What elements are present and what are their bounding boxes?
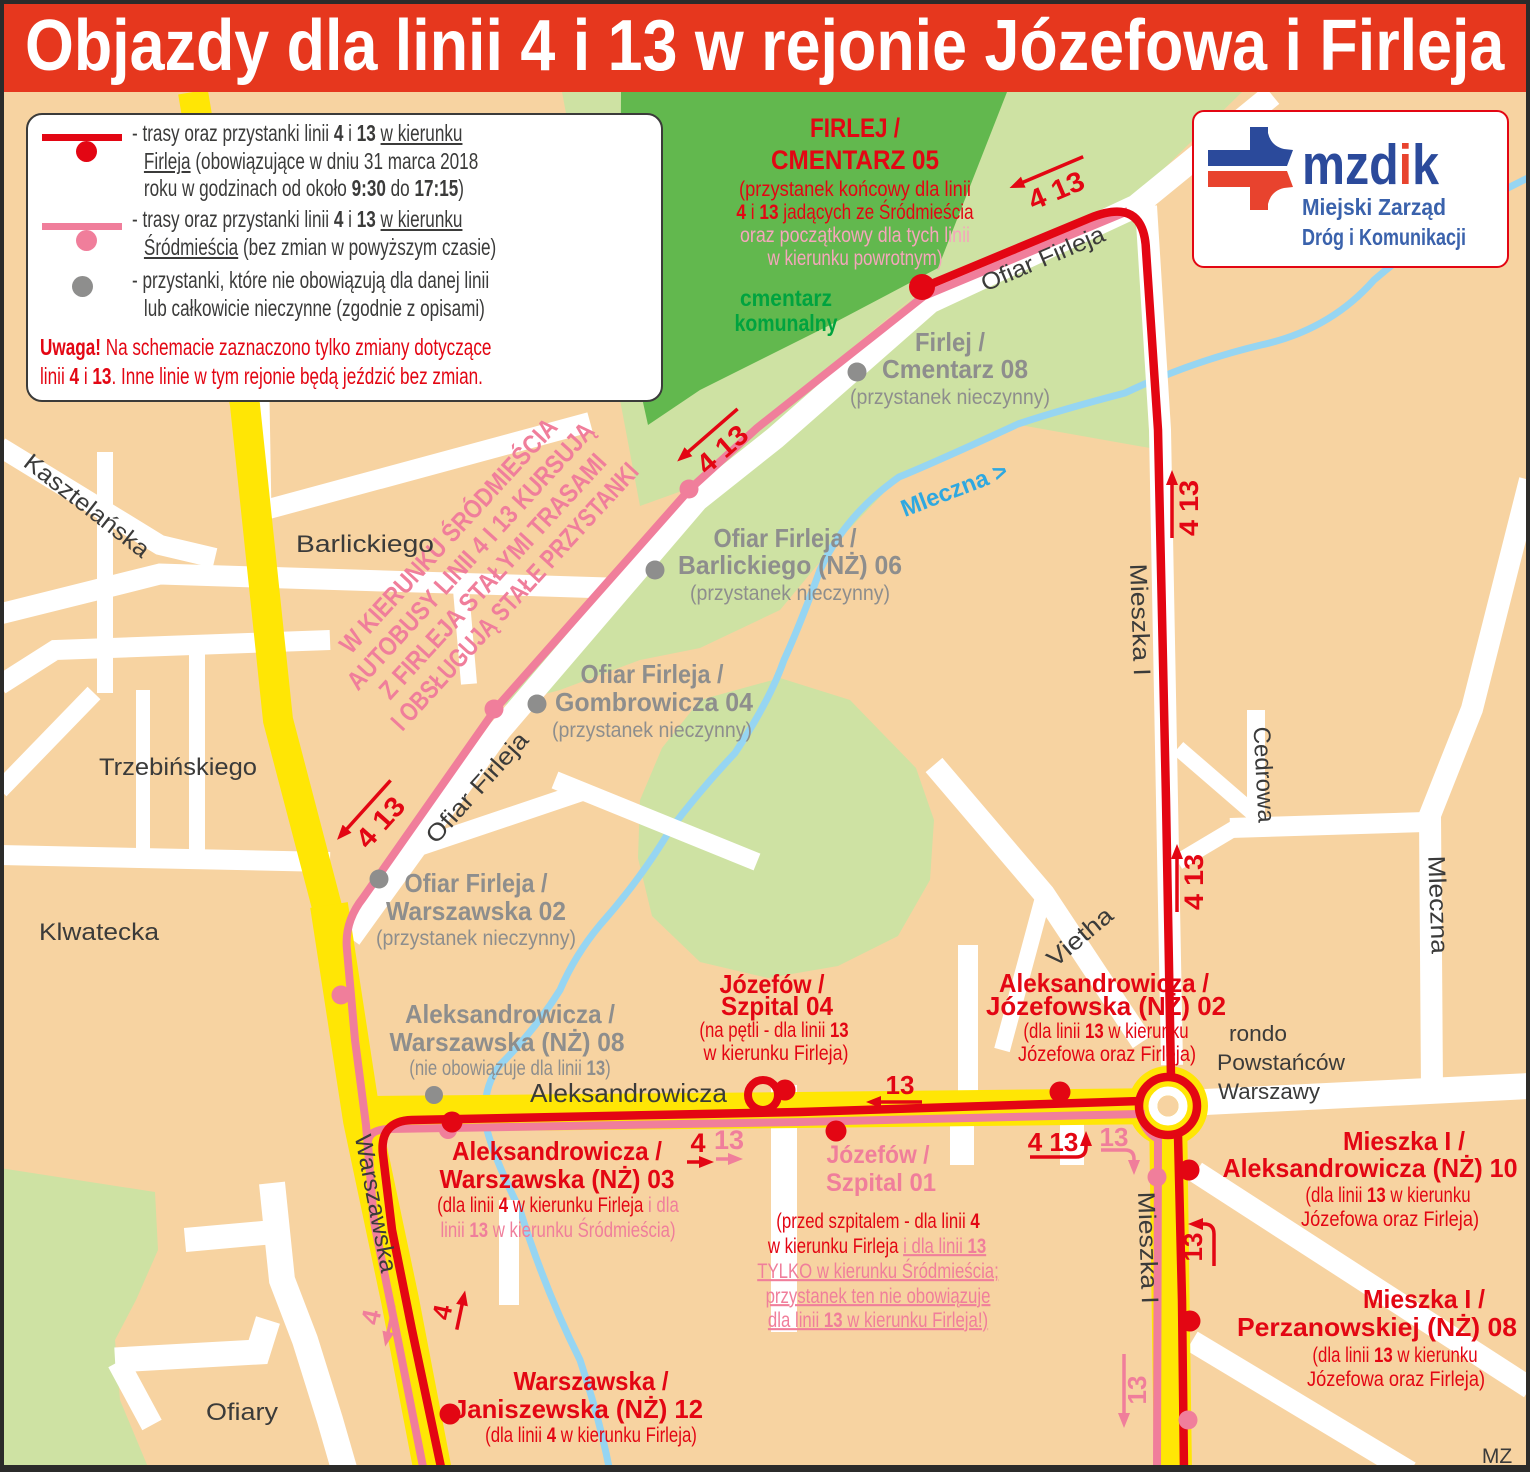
svg-text:dla linii 13 w kierunku Firlej: dla linii 13 w kierunku Firleja!) <box>768 1309 988 1332</box>
svg-text:MZ: MZ <box>1482 1445 1512 1468</box>
svg-text:4 i 13 jadących ze Śródmieścia: 4 i 13 jadących ze Śródmieścia <box>736 200 973 224</box>
svg-text:13: 13 <box>1100 1122 1129 1152</box>
svg-text:Warszawy: Warszawy <box>1218 1079 1320 1104</box>
svg-text:Barlickiego (NŻ) 06: Barlickiego (NŻ) 06 <box>678 550 902 580</box>
svg-text:Józefowa oraz Firleja): Józefowa oraz Firleja) <box>1018 1043 1196 1066</box>
svg-text:4 13: 4 13 <box>1179 854 1209 910</box>
svg-text:4 13: 4 13 <box>1028 1127 1079 1157</box>
svg-text:TYLKO w kierunku Śródmieścia;: TYLKO w kierunku Śródmieścia; <box>757 1259 999 1283</box>
svg-text:Janiszewska (NŻ) 12: Janiszewska (NŻ) 12 <box>453 1394 703 1424</box>
svg-text:(przystanek nieczynny): (przystanek nieczynny) <box>850 386 1050 409</box>
svg-text:cmentarz: cmentarz <box>740 285 832 311</box>
svg-text:Firlej /: Firlej / <box>915 327 985 357</box>
svg-text:Ofiar Firleja /: Ofiar Firleja / <box>405 868 548 898</box>
svg-text:(przystanek końcowy dla linii: (przystanek końcowy dla linii <box>739 178 971 201</box>
svg-text:Józefów /: Józefów / <box>827 1141 930 1169</box>
svg-text:(przystanek nieczynny): (przystanek nieczynny) <box>690 582 890 605</box>
svg-text:Klwatecka: Klwatecka <box>39 919 160 946</box>
svg-text:Gombrowicza 04: Gombrowicza 04 <box>555 687 754 717</box>
svg-text:(dla linii 4 w kierunku Firlej: (dla linii 4 w kierunku Firleja i dla <box>437 1194 679 1217</box>
svg-text:Ofiar Firleja /: Ofiar Firleja / <box>581 659 724 689</box>
svg-text:Warszawska (NŻ) 08: Warszawska (NŻ) 08 <box>390 1027 625 1057</box>
svg-text:Warszawska (NŻ) 03: Warszawska (NŻ) 03 <box>440 1164 675 1194</box>
svg-text:Mieszka I: Mieszka I <box>1132 1191 1163 1304</box>
svg-text:oraz początkowy dla tych linii: oraz początkowy dla tych linii <box>740 224 970 247</box>
svg-text:4: 4 <box>690 1128 705 1158</box>
svg-text:Barlickiego: Barlickiego <box>296 531 434 558</box>
svg-text:Warszawska 02: Warszawska 02 <box>386 896 566 926</box>
svg-text:w kierunku powrotnym): w kierunku powrotnym) <box>767 247 943 270</box>
svg-text:(przystanek nieczynny): (przystanek nieczynny) <box>552 719 752 742</box>
svg-text:Ofiar Firleja /: Ofiar Firleja / <box>714 523 857 553</box>
svg-text:rondo: rondo <box>1229 1021 1287 1046</box>
svg-text:13: 13 <box>1178 1233 1208 1262</box>
svg-text:Ofiary: Ofiary <box>206 1399 278 1426</box>
svg-text:13: 13 <box>1122 1376 1152 1405</box>
svg-text:Mleczna: Mleczna <box>1422 855 1452 955</box>
svg-text:(dla linii 4 w kierunku Firlej: (dla linii 4 w kierunku Firleja) <box>485 1424 697 1447</box>
svg-text:(na pętli - dla linii 13: (na pętli - dla linii 13 <box>699 1019 848 1042</box>
svg-text:Miejski Zarząd: Miejski Zarząd <box>1302 194 1446 220</box>
svg-text:Trzebińskiego: Trzebińskiego <box>99 754 257 781</box>
svg-text:Aleksandrowicza (NŻ) 10: Aleksandrowicza (NŻ) 10 <box>1223 1153 1518 1183</box>
svg-text:mzdik: mzdik <box>1302 133 1439 197</box>
svg-text:Cedrowa: Cedrowa <box>1247 726 1279 824</box>
svg-text:w kierunku Firleja i dla linii: w kierunku Firleja i dla linii 13 <box>767 1235 986 1258</box>
svg-text:w kierunku Firleja): w kierunku Firleja) <box>703 1042 849 1065</box>
svg-text:(przed szpitalem - dla linii 4: (przed szpitalem - dla linii 4 <box>776 1210 980 1233</box>
svg-text:Warszawska /: Warszawska / <box>514 1366 669 1396</box>
svg-text:(dla linii 13 w kierunku: (dla linii 13 w kierunku <box>1023 1020 1188 1043</box>
svg-text:Szpital 04: Szpital 04 <box>721 991 833 1021</box>
svg-text:Mieszka I: Mieszka I <box>1124 563 1155 676</box>
svg-text:13: 13 <box>886 1070 915 1100</box>
svg-text:Aleksandrowicza /: Aleksandrowicza / <box>452 1136 662 1166</box>
svg-text:Powstańców: Powstańców <box>1217 1050 1345 1075</box>
svg-text:Szpital 01: Szpital 01 <box>826 1169 936 1197</box>
svg-text:Józefowska (NŻ) 02: Józefowska (NŻ) 02 <box>986 991 1226 1021</box>
svg-text:Józefowa oraz Firleja): Józefowa oraz Firleja) <box>1301 1208 1479 1231</box>
svg-text:Mieszka I /: Mieszka I / <box>1343 1126 1465 1156</box>
svg-text:Mieszka I /: Mieszka I / <box>1363 1284 1485 1314</box>
svg-text:Dróg i Komunikacji: Dróg i Komunikacji <box>1302 224 1466 250</box>
svg-text:13: 13 <box>714 1125 744 1155</box>
svg-text:Perzanowskiej (NŻ) 08: Perzanowskiej (NŻ) 08 <box>1237 1312 1517 1342</box>
svg-text:CMENTARZ 05: CMENTARZ 05 <box>771 145 939 175</box>
svg-text:(dla linii 13 w kierunku: (dla linii 13 w kierunku <box>1305 1184 1470 1207</box>
svg-text:komunalny: komunalny <box>735 310 838 336</box>
svg-text:Cmentarz 08: Cmentarz 08 <box>882 354 1028 384</box>
svg-text:Aleksandrowicza /: Aleksandrowicza / <box>405 999 615 1029</box>
svg-text:Józefowa oraz Firleja): Józefowa oraz Firleja) <box>1307 1368 1485 1391</box>
svg-text:linii 13 w kierunku Śródmieści: linii 13 w kierunku Śródmieścia) <box>440 1218 675 1242</box>
svg-text:Aleksandrowicza: Aleksandrowicza <box>530 1078 728 1108</box>
svg-text:FIRLEJ /: FIRLEJ / <box>810 113 900 143</box>
svg-text:(dla linii 13 w kierunku: (dla linii 13 w kierunku <box>1312 1344 1477 1367</box>
svg-text:(przystanek nieczynny): (przystanek nieczynny) <box>376 927 576 950</box>
svg-text:4 13: 4 13 <box>1174 480 1204 536</box>
svg-text:przystanek ten nie obowiązuje: przystanek ten nie obowiązuje <box>766 1285 991 1308</box>
